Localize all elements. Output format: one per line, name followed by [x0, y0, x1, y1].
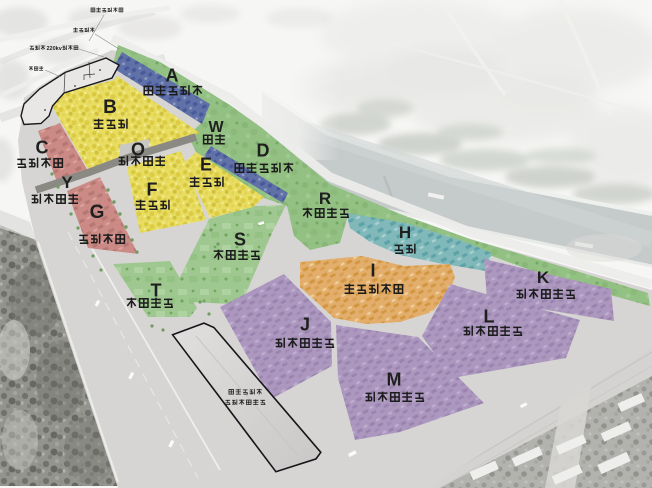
svg-text:I: I [370, 261, 375, 281]
svg-text:L: L [484, 307, 495, 327]
svg-text:G: G [90, 202, 105, 223]
svg-text:F: F [147, 180, 158, 200]
svg-text:A: A [166, 66, 179, 86]
svg-text:M: M [387, 370, 402, 390]
svg-text:E: E [200, 155, 212, 175]
svg-text:R: R [319, 189, 331, 208]
svg-text:J: J [300, 315, 310, 335]
svg-text:W: W [208, 119, 224, 136]
svg-text:B: B [103, 97, 117, 118]
svg-text:Y: Y [61, 173, 73, 192]
svg-text:220kv: 220kv [47, 46, 63, 52]
svg-text:T: T [151, 281, 162, 301]
svg-text:D: D [257, 141, 270, 161]
svg-text:K: K [537, 268, 550, 287]
svg-text:H: H [399, 223, 411, 242]
svg-text:C: C [36, 138, 49, 158]
svg-text:S: S [234, 230, 246, 250]
